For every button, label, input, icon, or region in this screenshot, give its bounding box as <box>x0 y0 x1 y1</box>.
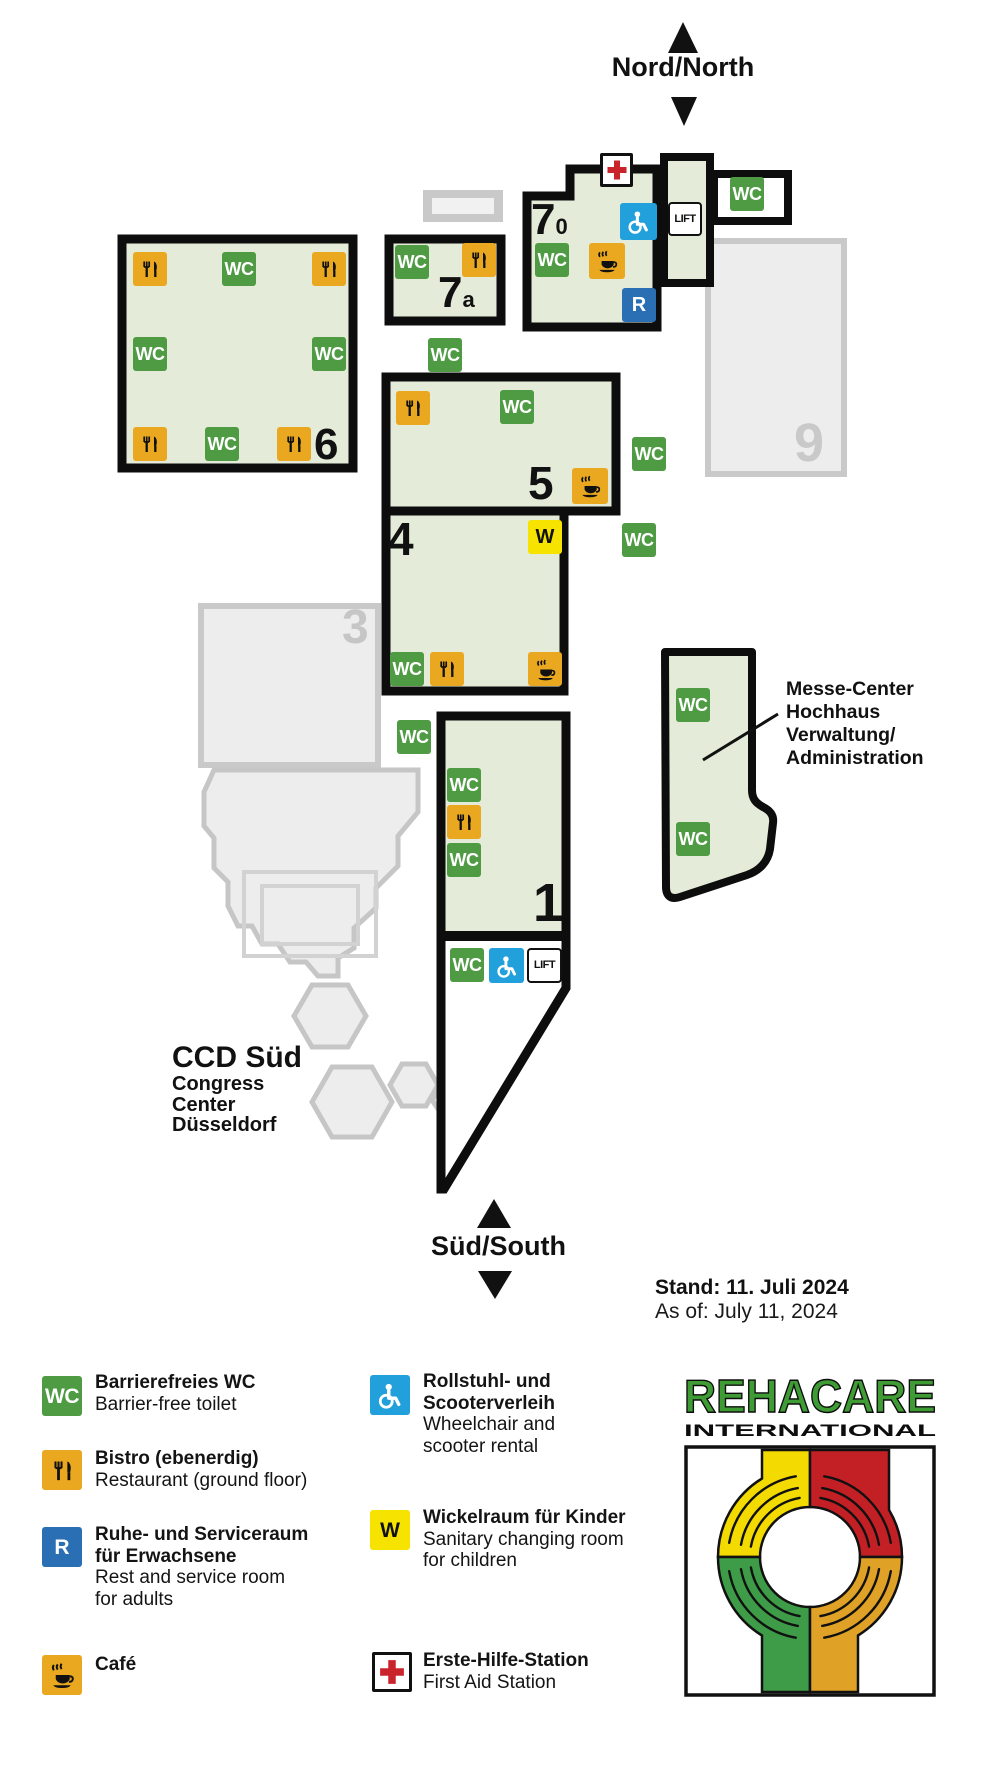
legend-item-wc: Barrierefreies WC Barrier-free toilet <box>95 1372 256 1415</box>
gray-annex-inner <box>432 198 494 214</box>
logo-subtitle: INTERNATIONAL <box>684 1421 936 1440</box>
map-date: Stand: 11. Juli 2024 As of: July 11, 202… <box>655 1276 849 1324</box>
logo-wordmark: REHACARE <box>684 1372 936 1422</box>
wc-badge: WC <box>447 843 481 877</box>
wc-badge: WC <box>222 252 256 286</box>
ccd-caption: CCD Süd Congress Center Düsseldorf <box>172 1042 302 1136</box>
legend-item-first-aid: Erste-Hilfe-Station First Aid Station <box>423 1650 589 1693</box>
wc-badge: WC <box>390 652 424 686</box>
wc-badge: WC <box>312 337 346 371</box>
legend-item-cafe: Café <box>95 1654 136 1676</box>
wc-badge: WC <box>133 337 167 371</box>
wc-badge: WC <box>447 768 481 802</box>
wc-badge: WC <box>622 523 656 557</box>
legend-item-rest-room: Ruhe- und Serviceraum für Erwachsene Res… <box>95 1524 308 1610</box>
rehacare-logo: REHACARE INTERNATIONAL <box>680 1372 940 1707</box>
south-down-arrow-icon <box>478 1271 512 1299</box>
fairground-map: Nord/North Süd/South 6 7a 70 5 4 1 3 9 W… <box>0 0 1000 1781</box>
wc-badge: WC <box>42 1376 82 1416</box>
hall-7a-label: 7a <box>438 271 475 315</box>
bistro-icon <box>277 427 311 461</box>
wc-badge: WC <box>676 688 710 722</box>
wheelchair-icon <box>370 1375 410 1415</box>
hall-5-label: 5 <box>528 460 554 506</box>
bistro-icon <box>42 1450 82 1490</box>
bistro-icon <box>396 391 430 425</box>
hall-7-0-label: 70 <box>531 198 568 242</box>
south-label: Süd/South <box>431 1231 561 1262</box>
wc-badge: WC <box>450 948 484 982</box>
cafe-icon <box>572 468 608 504</box>
wheelchair-icon <box>620 203 657 240</box>
bistro-icon <box>133 427 167 461</box>
wc-badge: WC <box>395 245 429 279</box>
changing-room-badge: W <box>528 520 562 554</box>
north-up-arrow-icon <box>668 22 698 53</box>
lift-badge: LIFT <box>668 202 702 236</box>
hall-9-label: 9 <box>794 416 824 470</box>
wc-badge: WC <box>500 390 534 424</box>
wc-badge: WC <box>730 177 764 211</box>
first-aid-icon <box>372 1652 412 1692</box>
wc-badge: WC <box>428 338 462 372</box>
cafe-icon <box>589 243 625 279</box>
north-label: Nord/North <box>608 52 758 83</box>
map-date-de: Stand: 11. Juli 2024 <box>655 1276 849 1300</box>
hall-1-label: 1 <box>533 876 563 930</box>
wc-badge: WC <box>397 720 431 754</box>
ccd-line: Congress <box>172 1074 302 1095</box>
bistro-icon <box>133 252 167 286</box>
first-aid-icon <box>600 153 633 187</box>
bistro-icon <box>430 652 464 686</box>
rest-room-badge: R <box>622 288 656 322</box>
lift-badge: LIFT <box>527 948 562 983</box>
bistro-icon <box>447 805 481 839</box>
wc-badge: WC <box>205 427 239 461</box>
rest-room-badge: R <box>42 1527 82 1567</box>
ccd-title: CCD Süd <box>172 1042 302 1074</box>
bistro-icon <box>462 243 496 277</box>
legend-item-wheelchair: Rollstuhl- und Scooterverleih Wheelchair… <box>423 1371 555 1457</box>
messe-center-caption: Messe-Center Hochhaus Verwaltung/ Admini… <box>786 678 924 770</box>
south-up-arrow-icon <box>477 1199 511 1228</box>
north-down-arrow-icon <box>671 97 697 126</box>
wheelchair-icon <box>489 948 524 983</box>
cafe-icon <box>42 1655 82 1695</box>
wc-badge: WC <box>632 437 666 471</box>
bistro-icon <box>312 252 346 286</box>
legend-item-changing-room: Wickelraum für Kinder Sanitary changing … <box>423 1507 626 1572</box>
hall-4-label: 4 <box>388 516 414 562</box>
hall-3-label: 3 <box>342 604 369 652</box>
hall-6-label: 6 <box>314 423 338 467</box>
cafe-icon <box>528 652 562 686</box>
messe-center-line: Hochhaus <box>786 701 924 724</box>
ccd-line: Center <box>172 1095 302 1116</box>
changing-room-badge: W <box>370 1510 410 1550</box>
map-date-en: As of: July 11, 2024 <box>655 1300 849 1324</box>
messe-center-line: Verwaltung/ <box>786 724 924 747</box>
messe-center-line: Administration <box>786 747 924 770</box>
wc-badge: WC <box>676 822 710 856</box>
ccd-line: Düsseldorf <box>172 1115 302 1136</box>
wc-badge: WC <box>535 243 569 277</box>
legend-item-bistro: Bistro (ebenerdig) Restaurant (ground fl… <box>95 1448 307 1491</box>
logo-hands-emblem <box>686 1447 934 1695</box>
messe-center-line: Messe-Center <box>786 678 924 701</box>
